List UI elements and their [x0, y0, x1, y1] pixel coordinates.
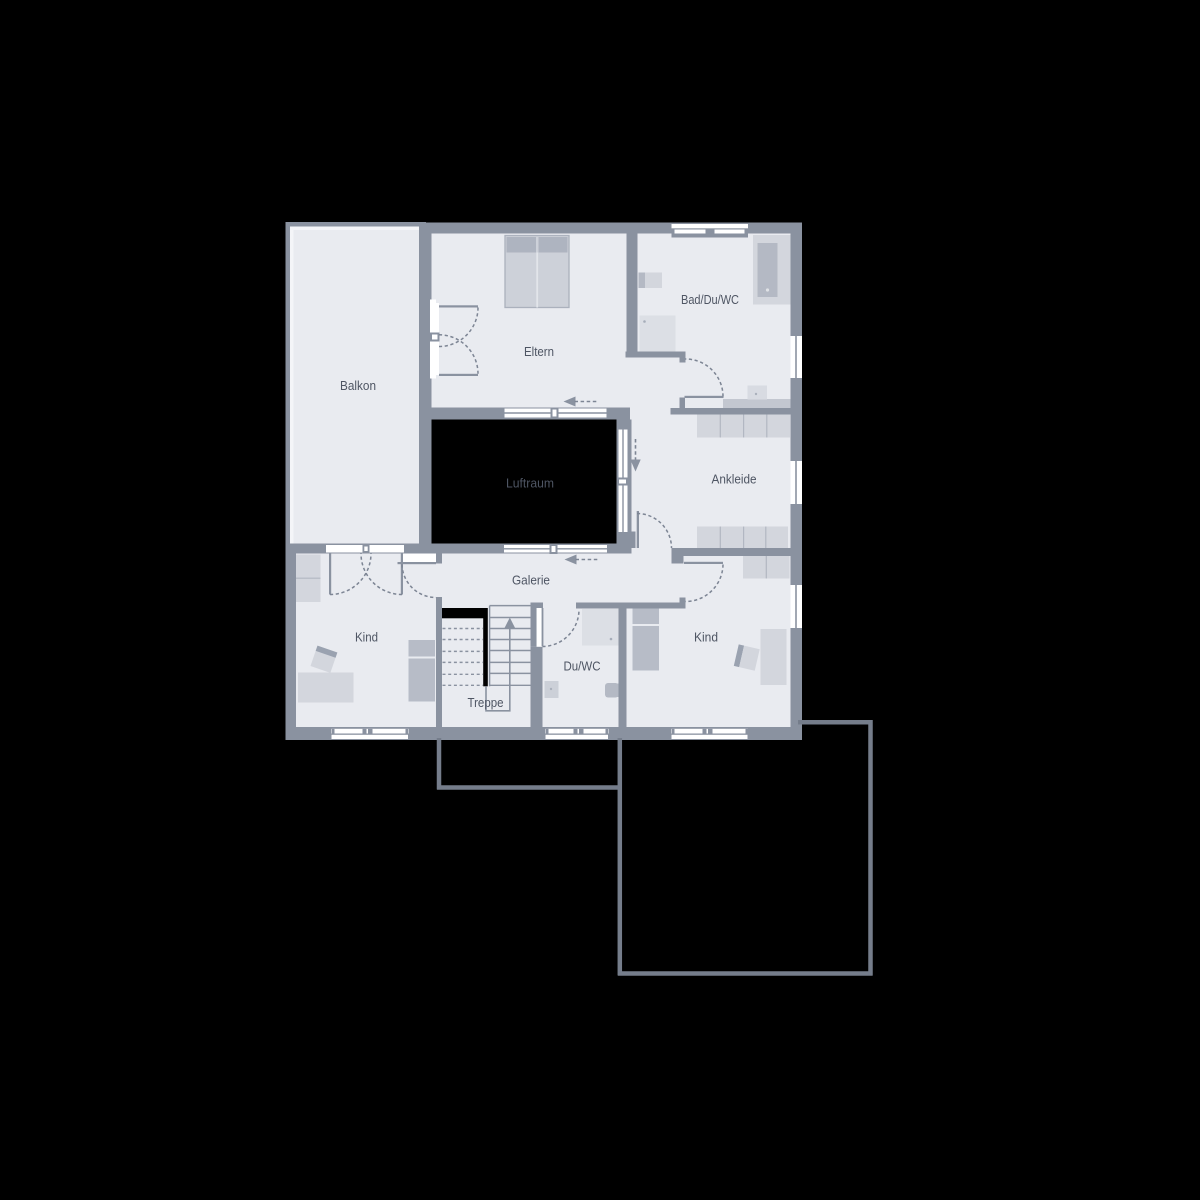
- svg-text:Kind: Kind: [355, 630, 378, 645]
- svg-text:Kind: Kind: [694, 630, 718, 645]
- svg-text:Luftraum: Luftraum: [506, 476, 554, 491]
- svg-text:Balkon: Balkon: [340, 378, 376, 393]
- svg-text:Du/WC: Du/WC: [564, 659, 601, 674]
- svg-text:Eltern: Eltern: [524, 344, 554, 359]
- svg-text:Galerie: Galerie: [512, 573, 550, 588]
- svg-text:Ankleide: Ankleide: [712, 472, 757, 487]
- svg-text:Treppe: Treppe: [468, 695, 504, 710]
- svg-text:Bad/Du/WC: Bad/Du/WC: [681, 292, 739, 307]
